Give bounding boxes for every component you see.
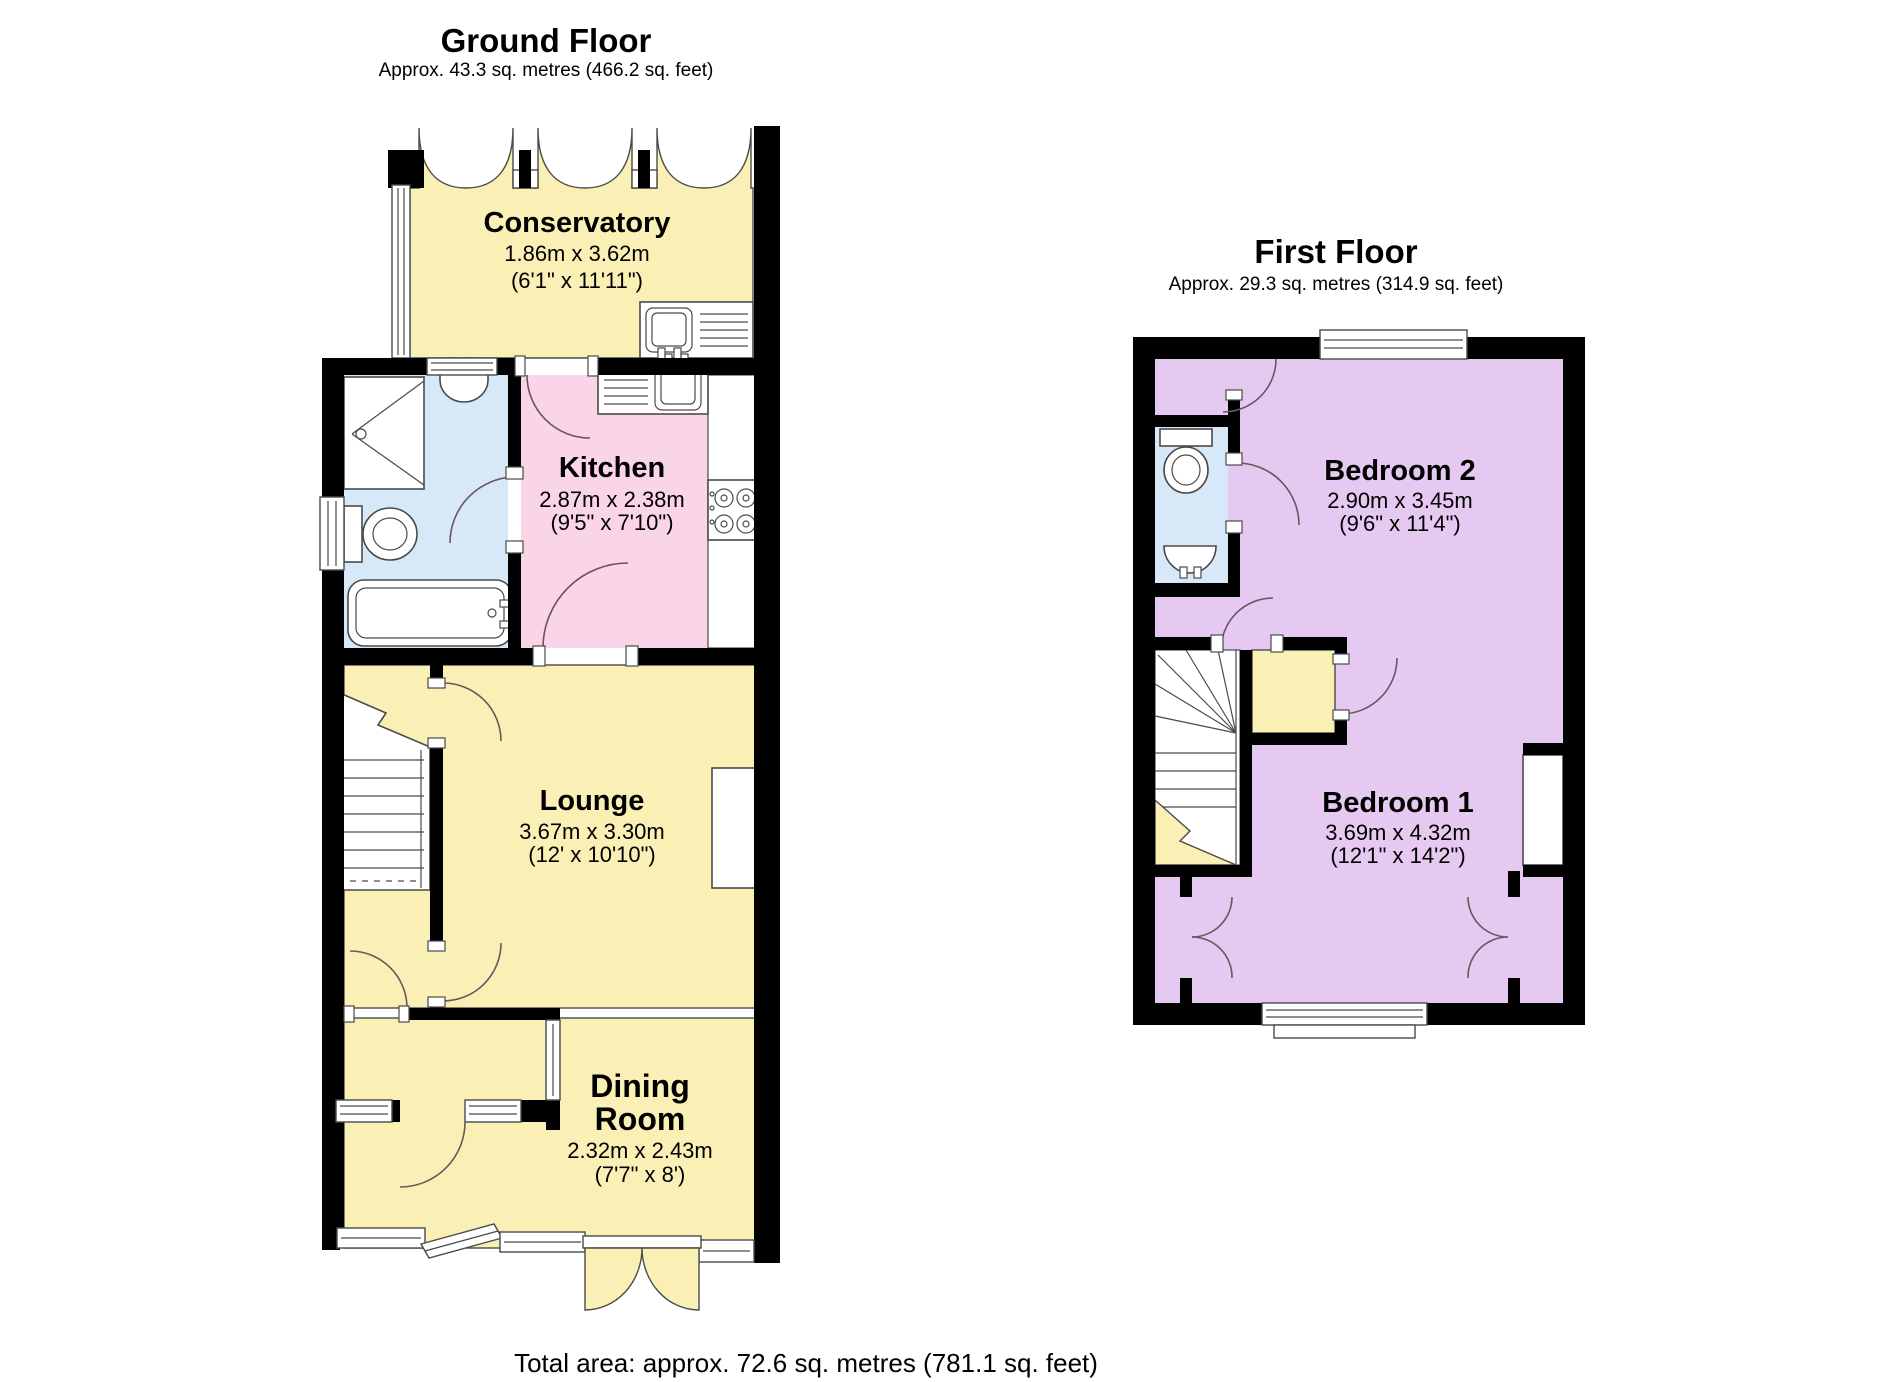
bedroom1-dims-metric: 3.69m x 4.32m bbox=[1325, 820, 1471, 845]
shower-drain bbox=[356, 429, 366, 439]
dining-label-line2: Room bbox=[595, 1101, 686, 1137]
window bbox=[1320, 330, 1467, 359]
conservatory-dims-metric: 1.86m x 3.62m bbox=[504, 241, 650, 266]
conservatory-dims-imperial: (6'1" x 11'11") bbox=[511, 268, 643, 293]
bedroom1-label: Bedroom 1 bbox=[1322, 787, 1473, 819]
total-area-label: Total area: approx. 72.6 sq. metres (781… bbox=[514, 1348, 1098, 1378]
dining-dims-metric: 2.32m x 2.43m bbox=[567, 1138, 713, 1163]
ground-floor-plan: Ground Floor Approx. 43.3 sq. metres (46… bbox=[320, 22, 780, 1310]
sink-unit bbox=[640, 302, 753, 361]
lounge-dims-imperial: (12' x 10'10") bbox=[528, 842, 656, 867]
bathtub bbox=[348, 580, 512, 646]
ground-floor-title: Ground Floor bbox=[441, 22, 652, 59]
floorplan-image: Ground Floor Approx. 43.3 sq. metres (46… bbox=[0, 0, 1900, 1382]
window bbox=[336, 1100, 392, 1122]
toilet bbox=[1160, 429, 1212, 493]
ground-floor-area: Approx. 43.3 sq. metres (466.2 sq. feet) bbox=[379, 60, 714, 81]
fireplace bbox=[712, 768, 756, 888]
bedroom2-dims-metric: 2.90m x 3.45m bbox=[1327, 488, 1473, 513]
dining-label-line1: Dining bbox=[590, 1068, 690, 1104]
conservatory-label: Conservatory bbox=[484, 207, 671, 239]
first-floor-area: Approx. 29.3 sq. metres (314.9 sq. feet) bbox=[1169, 274, 1504, 295]
window-sill bbox=[1274, 1025, 1415, 1038]
first-floor-plan: First Floor Approx. 29.3 sq. metres (314… bbox=[1133, 233, 1585, 1038]
window bbox=[465, 1100, 521, 1122]
wall-segment bbox=[388, 150, 424, 188]
window bbox=[392, 185, 410, 358]
mullion-post bbox=[519, 150, 531, 188]
bedroom2-dims-imperial: (9'6" x 11'4") bbox=[1339, 511, 1460, 536]
kitchen-label: Kitchen bbox=[559, 452, 665, 484]
first-floor-title: First Floor bbox=[1254, 233, 1417, 270]
room-conservatory: Conservatory 1.86m x 3.62m (6'1" x 11'11… bbox=[388, 128, 753, 361]
landing bbox=[1252, 650, 1335, 733]
mullion-post bbox=[638, 150, 650, 188]
chimney-breast bbox=[1523, 755, 1563, 865]
floorplan-page: Ground Floor Approx. 43.3 sq. metres (46… bbox=[0, 0, 1900, 1382]
toilet bbox=[344, 506, 417, 562]
bedroom2-label: Bedroom 2 bbox=[1324, 455, 1475, 487]
bedroom1-dims-imperial: (12'1" x 14'2") bbox=[1330, 843, 1465, 868]
window bbox=[320, 497, 344, 570]
hob bbox=[708, 480, 756, 540]
lounge-dims-metric: 3.67m x 3.30m bbox=[519, 819, 665, 844]
kitchen-dims-imperial: (9'5" x 7'10") bbox=[550, 510, 673, 535]
lounge-label: Lounge bbox=[540, 785, 645, 817]
dining-dims-imperial: (7'7" x 8') bbox=[595, 1162, 686, 1187]
french-door-sill bbox=[583, 1236, 701, 1248]
kitchen-dims-metric: 2.87m x 2.38m bbox=[539, 487, 685, 512]
french-doors bbox=[585, 1248, 699, 1310]
window bbox=[1262, 1003, 1427, 1025]
window bbox=[427, 358, 497, 375]
